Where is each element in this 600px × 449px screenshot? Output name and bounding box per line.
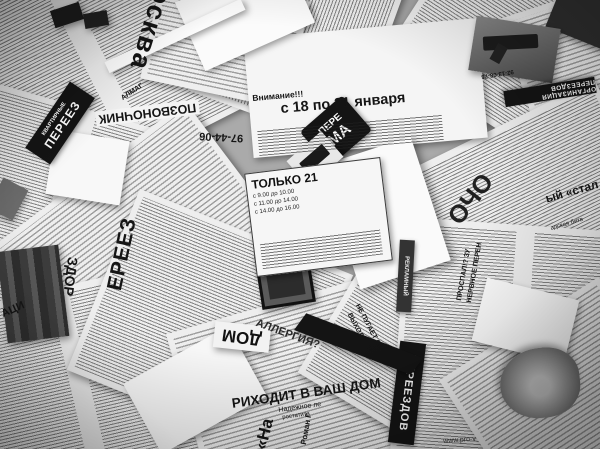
newspaper-collage-photo: КВАРТИРНЫЕ ПЕРЕЕЗ ПЕРЕ МА ОРГАНИЗАЦИЯ ПЕ… bbox=[0, 0, 600, 449]
photo-crowd bbox=[0, 245, 69, 344]
ad-tolko-21: ТОЛЬКО 21 с 9.00 до 10.00 с 11.00 до 14.… bbox=[244, 157, 393, 277]
reklamny-strip-text: РЕКЛАМНЫЙ bbox=[401, 256, 409, 296]
revolver-silhouette bbox=[483, 34, 539, 51]
tolko-fine-print bbox=[260, 229, 383, 270]
phone-upside-down: 97-44-06 bbox=[199, 130, 244, 143]
